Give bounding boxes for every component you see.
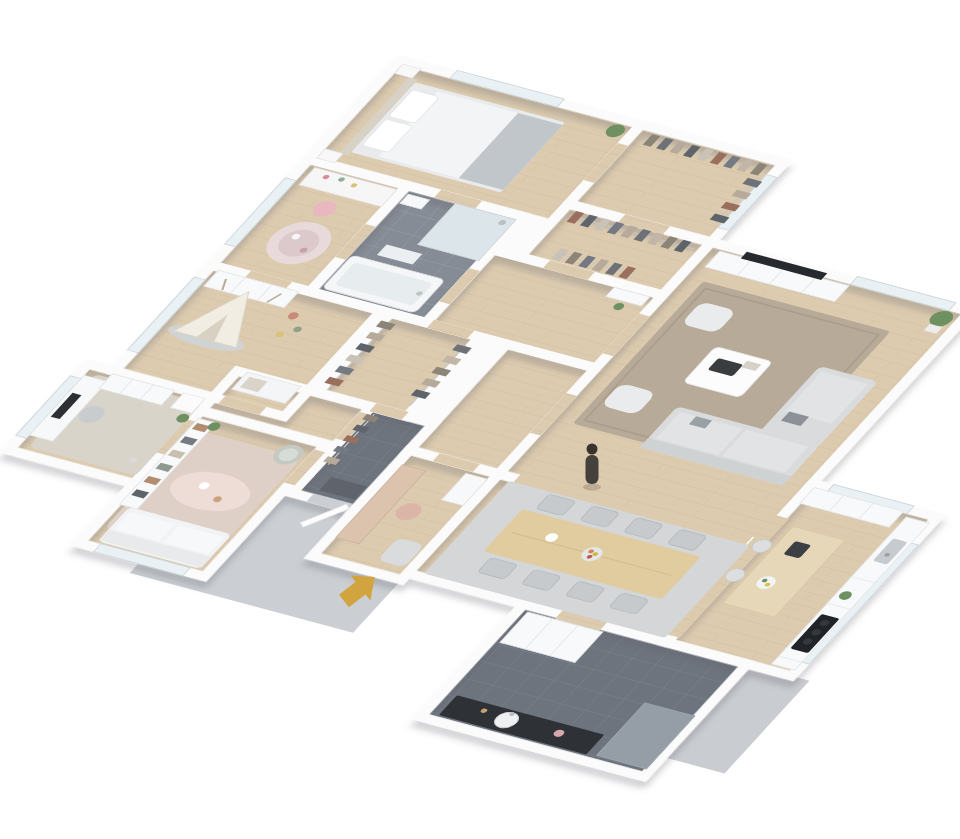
person-head [587, 444, 598, 455]
floorplan-svg [0, 0, 960, 839]
floorplan-render [0, 0, 960, 839]
plan [0, 47, 960, 793]
